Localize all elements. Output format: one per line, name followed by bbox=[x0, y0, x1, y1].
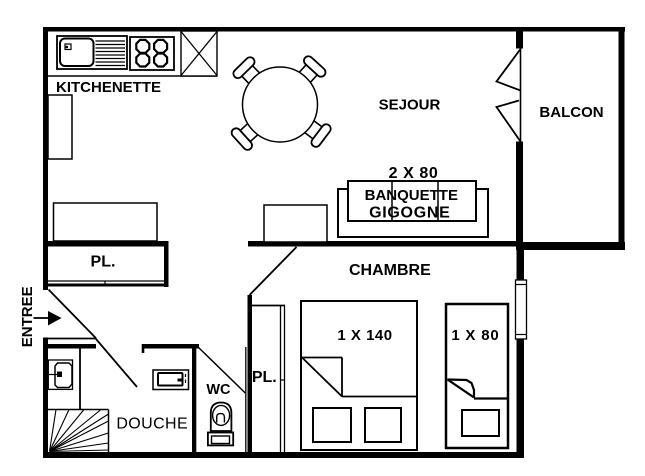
svg-text:1 X 140: 1 X 140 bbox=[337, 327, 392, 344]
svg-text:PL.: PL. bbox=[252, 369, 277, 386]
svg-text:BANQUETTE: BANQUETTE bbox=[365, 187, 458, 204]
svg-text:DOUCHE: DOUCHE bbox=[116, 416, 188, 433]
svg-text:BALCON: BALCON bbox=[539, 104, 603, 121]
svg-text:1 X 80: 1 X 80 bbox=[451, 327, 499, 344]
svg-text:PL.: PL. bbox=[91, 254, 116, 271]
svg-text:GIGOGNE: GIGOGNE bbox=[369, 204, 450, 221]
svg-text:SEJOUR: SEJOUR bbox=[379, 97, 441, 114]
svg-text:ENTREE: ENTREE bbox=[19, 286, 36, 347]
svg-text:KITCHENETTE: KITCHENETTE bbox=[56, 79, 161, 96]
svg-text:WC: WC bbox=[206, 382, 231, 398]
svg-text:2 X 80: 2 X 80 bbox=[389, 165, 439, 182]
svg-text:CHAMBRE: CHAMBRE bbox=[349, 262, 431, 279]
